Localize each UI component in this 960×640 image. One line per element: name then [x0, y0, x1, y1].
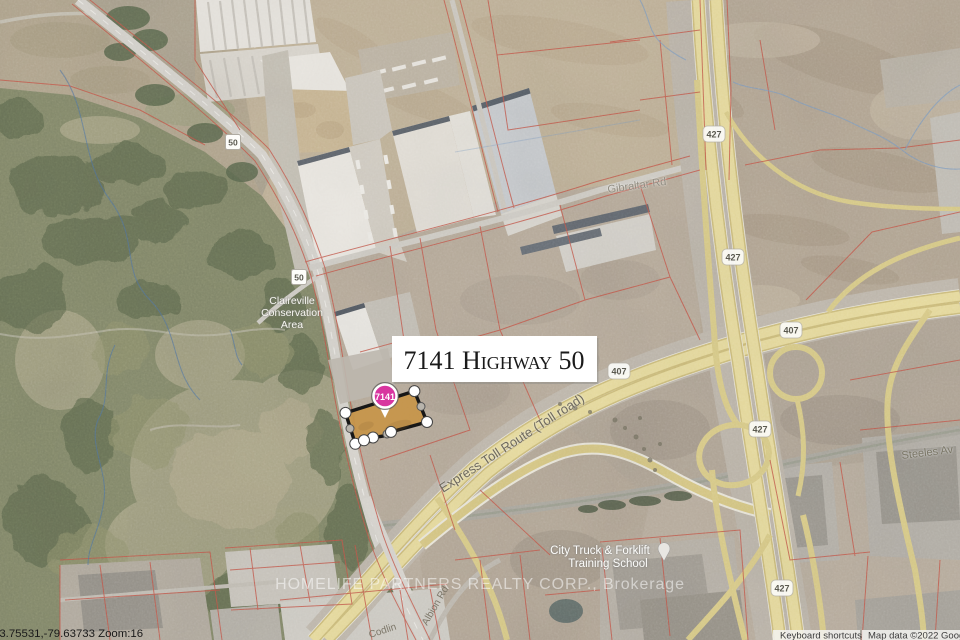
svg-text:407: 407	[783, 326, 798, 336]
svg-text:Map data ©2022 Goog: Map data ©2022 Goog	[868, 631, 960, 640]
svg-text:427: 427	[706, 130, 721, 140]
svg-text:427: 427	[725, 253, 740, 263]
svg-text:Area: Area	[281, 319, 303, 331]
svg-text:City Truck & Forklift: City Truck & Forklift	[550, 545, 650, 557]
svg-text:Conservation: Conservation	[261, 307, 323, 319]
svg-text:407: 407	[611, 367, 626, 377]
svg-text:50: 50	[228, 138, 238, 148]
svg-text:7141: 7141	[375, 392, 395, 402]
svg-text:427: 427	[774, 584, 789, 594]
svg-text:7141 Highway 50: 7141 Highway 50	[403, 346, 584, 375]
svg-text:Claireville: Claireville	[269, 295, 315, 307]
svg-text:427: 427	[752, 425, 767, 435]
svg-text:43.75531,-79.63733 Zoom:16: 43.75531,-79.63733 Zoom:16	[0, 628, 143, 640]
svg-text:50: 50	[294, 273, 304, 283]
svg-text:Training School: Training School	[568, 558, 647, 570]
svg-text:HOMELIFE PARTNERS REALTY CORP.: HOMELIFE PARTNERS REALTY CORP., Brokerag…	[275, 576, 685, 593]
svg-text:Keyboard shortcuts: Keyboard shortcuts	[780, 631, 862, 640]
